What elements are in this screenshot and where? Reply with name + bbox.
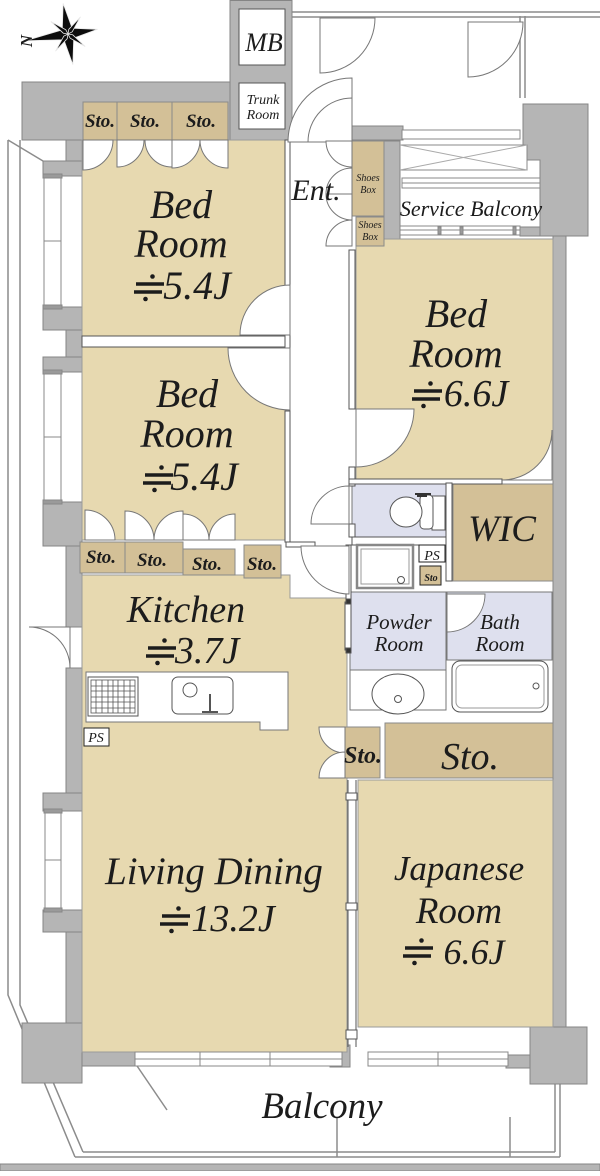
svg-text:Sto.: Sto.	[86, 547, 116, 568]
svg-text:Sto: Sto	[424, 573, 437, 584]
svg-text:Sto.: Sto.	[344, 743, 382, 769]
svg-text:Sto.: Sto.	[192, 554, 222, 575]
svg-text:Japanese: Japanese	[394, 849, 524, 888]
svg-text:Sto.: Sto.	[441, 736, 499, 778]
svg-text:Sto.: Sto.	[85, 111, 115, 132]
svg-text:Box: Box	[362, 232, 378, 243]
svg-text:6.6J: 6.6J	[444, 932, 507, 972]
svg-text:13.2J: 13.2J	[191, 898, 277, 940]
svg-text:MB: MB	[244, 28, 283, 57]
svg-text:Trunk: Trunk	[247, 93, 280, 108]
svg-text:3.7J: 3.7J	[174, 630, 242, 672]
svg-text:Room: Room	[139, 411, 233, 456]
svg-text:Room: Room	[475, 632, 525, 656]
svg-text:Sto.: Sto.	[186, 111, 216, 132]
svg-text:Service Balcony: Service Balcony	[400, 196, 543, 221]
svg-text:N: N	[17, 34, 36, 48]
svg-text:PS: PS	[87, 731, 104, 746]
svg-text:Sto.: Sto.	[137, 550, 167, 571]
svg-text:PS: PS	[423, 549, 440, 564]
svg-text:Room: Room	[133, 221, 227, 266]
svg-text:WIC: WIC	[468, 509, 537, 550]
svg-text:Bed: Bed	[425, 291, 488, 336]
svg-text:Living Dining: Living Dining	[104, 850, 323, 893]
svg-text:Room: Room	[246, 108, 280, 123]
svg-text:Shoes: Shoes	[356, 173, 379, 184]
svg-text:Ent.: Ent.	[290, 174, 340, 207]
svg-text:Kitchen: Kitchen	[126, 589, 245, 631]
svg-text:6.6J: 6.6J	[444, 373, 511, 415]
svg-text:Room: Room	[374, 632, 424, 656]
svg-text:Room: Room	[408, 331, 502, 376]
svg-text:Bed: Bed	[156, 371, 219, 416]
svg-text:Shoes: Shoes	[358, 220, 381, 231]
svg-text:Sto.: Sto.	[247, 554, 277, 575]
svg-text:Balcony: Balcony	[261, 1086, 383, 1127]
svg-text:Box: Box	[360, 185, 376, 196]
svg-text:Sto.: Sto.	[130, 111, 160, 132]
svg-text:5.4J: 5.4J	[163, 263, 233, 308]
svg-text:5.4J: 5.4J	[170, 454, 240, 499]
svg-text:Room: Room	[415, 891, 502, 932]
svg-text:Bath: Bath	[480, 610, 520, 634]
svg-text:Powder: Powder	[365, 610, 432, 634]
